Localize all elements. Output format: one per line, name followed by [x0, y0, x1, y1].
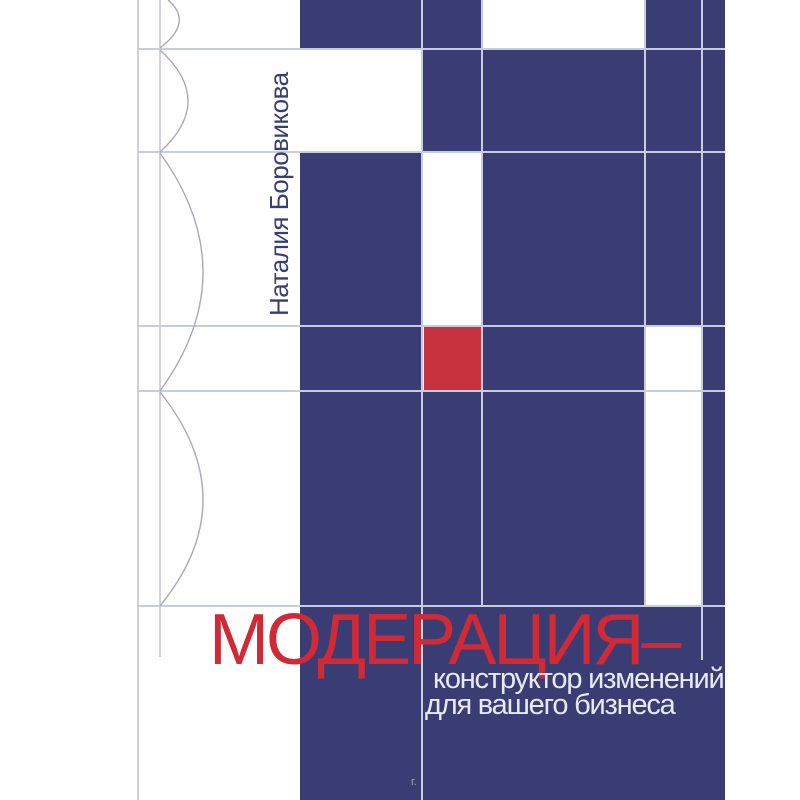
navy-block-center	[482, 153, 645, 607]
gridline-horizontal-1	[137, 48, 725, 50]
gridline-vertical-4	[701, 0, 703, 660]
red-square	[424, 327, 481, 390]
watermark-text: г.	[411, 777, 417, 788]
gridline-horizontal-2	[137, 151, 725, 153]
subtitle-line-2: для вашего бизнеса	[425, 692, 723, 718]
gridline-vertical-left-margin	[137, 0, 139, 800]
gridline-vertical-2	[481, 0, 483, 607]
navy-block-mid-center	[422, 392, 482, 607]
navy-column-left	[300, 153, 422, 607]
gridline-horizontal-3	[137, 325, 725, 327]
subtitle-block: конструктор изменений для вашего бизнеса	[425, 666, 723, 718]
navy-block-row2-center	[482, 50, 645, 153]
gridline-vertical-left-inner	[159, 0, 161, 657]
gridline-vertical-3	[644, 0, 646, 607]
navy-block-top-left	[300, 0, 422, 48]
book-cover: Наталия Боровикова МОДЕРАЦИЯ– конструкто…	[0, 0, 800, 800]
gridline-vertical-1	[421, 0, 423, 800]
navy-block-top-center	[422, 0, 482, 153]
author-vertical-text: Наталия Боровикова	[263, 92, 295, 316]
gridline-horizontal-4	[137, 390, 725, 392]
